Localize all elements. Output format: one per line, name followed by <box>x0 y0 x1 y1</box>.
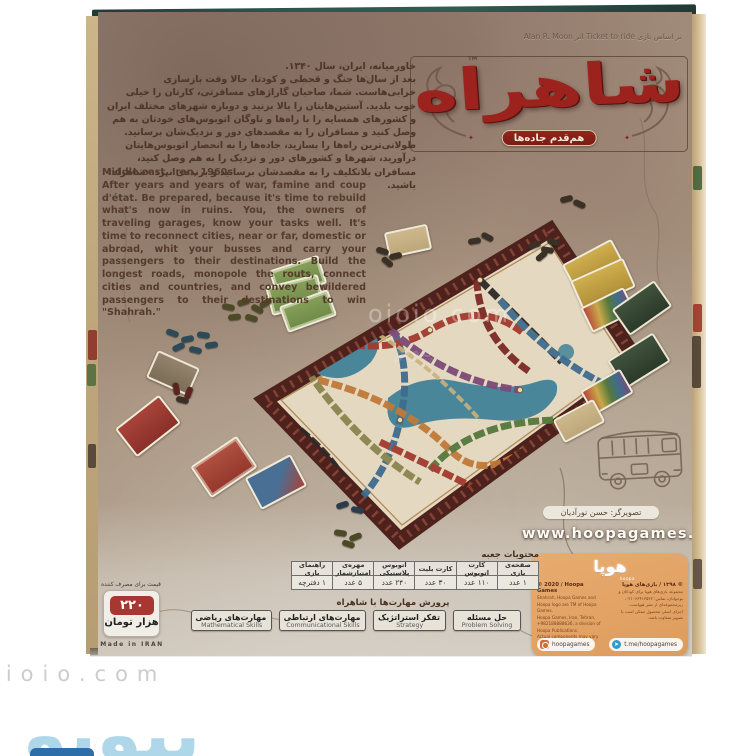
bus-sketch-illustration <box>593 420 689 502</box>
watermark-shop-logo-fragment <box>30 748 94 756</box>
box-contents-section: محتویات جعبه صفحه‌ی بازی ۱ عدد کارت اتوب… <box>291 550 539 590</box>
skill-label-fa: حل مسئله <box>459 613 515 622</box>
contents-header: مهره‌ی امتیازشمار <box>333 562 373 576</box>
contents-value: ۱ دفترچه <box>292 576 332 589</box>
contents-value: ۳۰ عدد <box>415 576 455 589</box>
hoopa-logo: هوپا <box>532 557 688 576</box>
game-logo-block: شاهراه TM ✦ هم‌قدم جاده‌ها ✦ <box>410 52 688 154</box>
intro-paragraph-en: Middle east, Iran, 1960s. After years an… <box>102 167 366 320</box>
intro-en-body: After years and years of war, famine and… <box>102 180 366 320</box>
legal-line: Hoopa Games, Iran, Tehran, +982188888636… <box>537 615 605 635</box>
skills-section-title: پرورش مهارت‌ها با شاهراه <box>268 598 518 608</box>
instagram-label: hoopagames <box>552 642 589 648</box>
telegram-handle: ➤ t.me/hoopagames <box>609 638 683 651</box>
price-unit: هزار تومان <box>104 617 159 628</box>
skill-label-fa: تفکر استراتژیک <box>379 613 440 622</box>
contents-column: راهنمای بازی ۱ دفترچه <box>292 562 332 589</box>
skill-communication: مهارت‌های ارتباطی Communicational Skills <box>279 610 366 631</box>
skill-label-fa: مهارت‌های ریاضی <box>197 613 266 622</box>
publisher-info-card: هوپا hoopa © 2020 / Hoopa Games Shahrah,… <box>532 554 688 656</box>
contents-column: صفحه‌ی بازی ۱ عدد <box>497 562 538 589</box>
edge-art-fleck <box>693 304 702 332</box>
contents-value: ۱۱۰ عدد <box>457 576 497 589</box>
edge-art-fleck <box>693 559 702 589</box>
price-note: قیمت برای مصرف کننده <box>98 582 164 588</box>
publisher-website: www.hoopagames.ir <box>522 526 692 542</box>
edge-art-fleck <box>88 330 97 360</box>
contents-header: اتوبوس پلاستیکی <box>374 562 414 576</box>
intro-fa-opening: خاورمیانه، ایران، سال ۱۳۴۰. <box>102 60 416 73</box>
contents-column: اتوبوس پلاستیکی ۲۴۰ عدد <box>373 562 414 589</box>
edge-art-fleck <box>693 166 702 190</box>
contents-value: ۲۴۰ عدد <box>374 576 414 589</box>
watermark-site-text: oioio.com <box>0 662 166 686</box>
skills-row: حل مسئله Problem Solving تفکر استراتژیک … <box>191 610 521 631</box>
contents-column: کارت بلیت ۳۰ عدد <box>414 562 455 589</box>
contents-header: کارت اتوبوس <box>457 562 497 576</box>
trademark-symbol: TM <box>468 56 477 62</box>
price-badge: ۲۲۰ هزار تومان <box>103 590 160 637</box>
banner-ornament: ✦ <box>624 134 630 142</box>
copyright-fa: © ۱۳۹۸ / بازی‌های هوپا <box>610 582 683 588</box>
based-on-credit: بر اساس بازی Ticket to ride اثر Alan R. … <box>412 32 682 41</box>
skill-label-en: Problem Solving <box>459 622 515 629</box>
skill-label-en: Strategy <box>379 622 440 629</box>
contents-value: ۵ عدد <box>333 576 373 589</box>
made-in-label: Made in IRAN <box>98 641 166 648</box>
edge-art-fleck <box>87 364 96 386</box>
contents-column: مهره‌ی امتیازشمار ۵ عدد <box>332 562 373 589</box>
contents-header: صفحه‌ی بازی <box>498 562 538 576</box>
instagram-handle: hoopagames <box>537 638 595 651</box>
contents-value: ۱ عدد <box>498 576 538 589</box>
legal-line: اجزای اصلی محصول ممکن است با تصویر متفاو… <box>610 609 683 622</box>
legal-line: مجموعه بازی‌های هوپا برای کودکان و نوجوا… <box>610 589 683 602</box>
box-right-edge <box>691 14 706 654</box>
social-handles: hoopagames ➤ t.me/hoopagames <box>537 638 683 651</box>
contents-title: محتویات جعبه <box>291 550 539 560</box>
hoopa-logo-latin: hoopa <box>620 576 635 581</box>
skill-strategy: تفکر استراتژیک Strategy <box>373 610 446 631</box>
skill-math: مهارت‌های ریاضی Mathematical Skills <box>191 610 272 631</box>
edge-art-fleck <box>88 444 96 468</box>
skill-label-en: Mathematical Skills <box>197 622 266 629</box>
telegram-label: t.me/hoopagames <box>624 642 677 648</box>
contents-table: صفحه‌ی بازی ۱ عدد کارت اتوبوس ۱۱۰ عدد کا… <box>291 561 539 590</box>
product-photo: بر اساس بازی Ticket to ride اثر Alan R. … <box>0 0 756 756</box>
instagram-icon <box>540 640 549 649</box>
legal-line: Shahrah, Hoopa Games and Hoopa logo are … <box>537 595 605 615</box>
skill-label-fa: مهارت‌های ارتباطی <box>285 613 360 622</box>
intro-en-opening: Middle east, Iran, 1960s. <box>102 167 366 180</box>
box-back-face: بر اساس بازی Ticket to ride اثر Alan R. … <box>98 12 692 656</box>
edge-art-fleck <box>692 336 701 388</box>
skill-label-en: Communicational Skills <box>285 622 360 629</box>
telegram-icon: ➤ <box>612 640 622 650</box>
contents-header: راهنمای بازی <box>292 562 332 576</box>
copyright-en: © 2020 / Hoopa Games <box>537 582 605 594</box>
price-amount: ۲۲۰ <box>110 596 154 615</box>
banner-ornament: ✦ <box>468 134 474 142</box>
skill-problem-solving: حل مسئله Problem Solving <box>453 610 521 631</box>
illustrator-credit: تصویرگر: حسن نورآدیان <box>543 506 659 519</box>
contents-header: کارت بلیت <box>415 562 455 576</box>
game-tagline-banner: هم‌قدم جاده‌ها <box>502 130 597 146</box>
contents-column: کارت اتوبوس ۱۱۰ عدد <box>456 562 497 589</box>
